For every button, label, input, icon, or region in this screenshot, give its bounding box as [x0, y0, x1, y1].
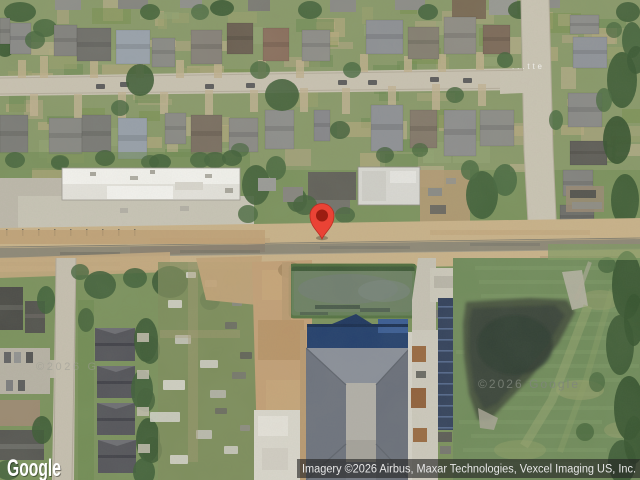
svg-text:Imagery ©2026 Airbus, Maxar Te: Imagery ©2026 Airbus, Maxar Technologies… [302, 464, 636, 476]
svg-text:Google: Google [7, 455, 61, 480]
